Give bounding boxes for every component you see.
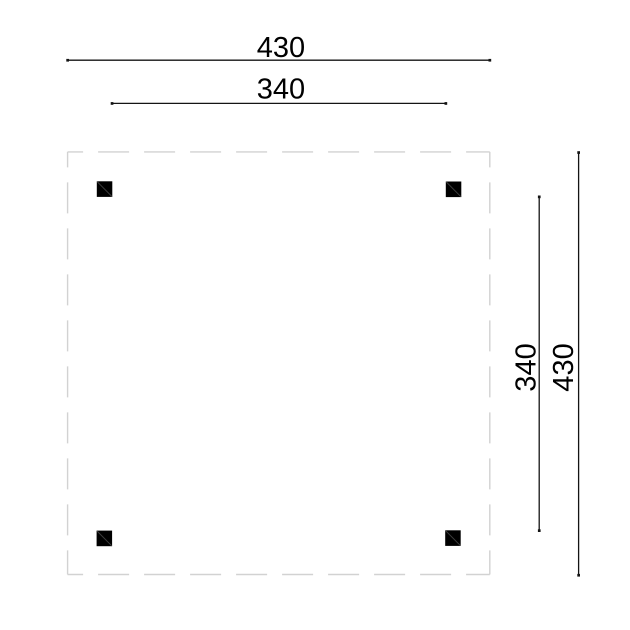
svg-text:430: 430 bbox=[548, 343, 580, 391]
svg-text:340: 340 bbox=[257, 73, 305, 105]
svg-text:430: 430 bbox=[257, 32, 305, 64]
svg-text:340: 340 bbox=[511, 343, 543, 391]
